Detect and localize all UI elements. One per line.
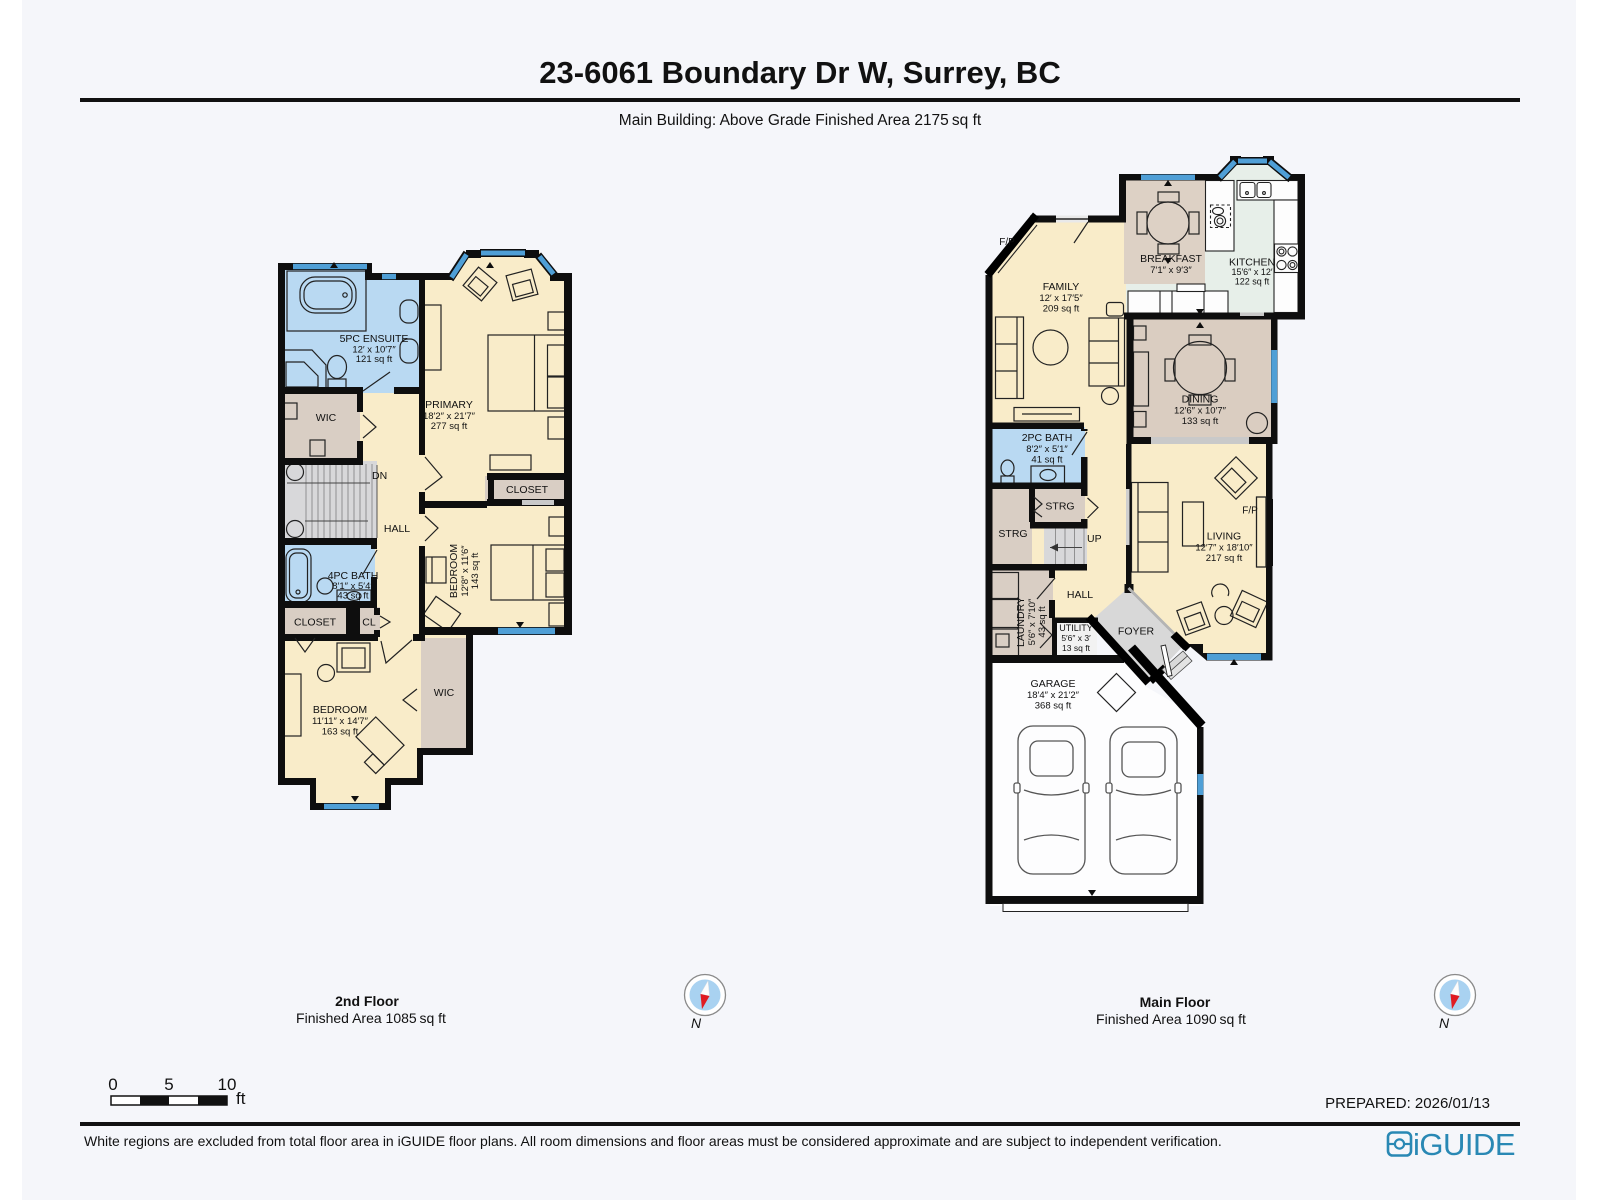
svg-text:368 sq ft: 368 sq ft bbox=[1035, 701, 1072, 712]
svg-text:217 sq ft: 217 sq ft bbox=[1206, 553, 1243, 564]
svg-text:CLOSET: CLOSET bbox=[506, 484, 549, 496]
svg-text:12′6″ x 10′7″: 12′6″ x 10′7″ bbox=[1174, 406, 1227, 417]
svg-text:STRG: STRG bbox=[998, 528, 1027, 540]
svg-text:iGUIDE: iGUIDE bbox=[1413, 1127, 1515, 1162]
svg-text:7′1″ x 9′3″: 7′1″ x 9′3″ bbox=[1150, 265, 1192, 276]
svg-text:HALL: HALL bbox=[1067, 589, 1093, 601]
svg-text:PRIMARY: PRIMARY bbox=[425, 399, 473, 411]
svg-text:UP: UP bbox=[1087, 533, 1102, 545]
svg-text:N: N bbox=[1439, 1015, 1450, 1031]
svg-text:N: N bbox=[691, 1015, 702, 1031]
svg-text:FOYER: FOYER bbox=[1118, 626, 1155, 638]
svg-text:43 sq ft: 43 sq ft bbox=[1037, 606, 1048, 638]
svg-text:WIC: WIC bbox=[434, 687, 455, 699]
svg-text:WIC: WIC bbox=[316, 412, 337, 424]
svg-text:209 sq ft: 209 sq ft bbox=[1043, 304, 1080, 315]
svg-text:143 sq ft: 143 sq ft bbox=[470, 552, 481, 589]
svg-text:277 sq ft: 277 sq ft bbox=[431, 421, 468, 432]
svg-text:122 sq ft: 122 sq ft bbox=[1235, 277, 1270, 287]
svg-text:8′2″ x 5′1″: 8′2″ x 5′1″ bbox=[1026, 444, 1068, 455]
svg-text:UTILITY: UTILITY bbox=[1059, 623, 1093, 633]
svg-text:12′7″ x 18′10″: 12′7″ x 18′10″ bbox=[1195, 543, 1253, 554]
svg-text:43 sq ft: 43 sq ft bbox=[337, 591, 369, 602]
svg-text:12′ x 17′5″: 12′ x 17′5″ bbox=[1039, 293, 1083, 304]
svg-text:5: 5 bbox=[164, 1075, 173, 1094]
svg-text:CLOSET: CLOSET bbox=[294, 617, 337, 629]
svg-text:F/P: F/P bbox=[1242, 506, 1258, 517]
svg-text:121 sq ft: 121 sq ft bbox=[356, 354, 393, 365]
svg-text:13 sq ft: 13 sq ft bbox=[1062, 643, 1091, 653]
svg-text:LAUNDRY: LAUNDRY bbox=[1015, 597, 1027, 647]
svg-text:FAMILY: FAMILY bbox=[1043, 281, 1080, 293]
svg-text:18′4″ x 21′2″: 18′4″ x 21′2″ bbox=[1027, 690, 1080, 701]
svg-text:HALL: HALL bbox=[384, 523, 410, 535]
svg-text:STRG: STRG bbox=[1045, 501, 1074, 513]
svg-text:5′6″ x 3′: 5′6″ x 3′ bbox=[1061, 633, 1091, 643]
svg-text:15′6″ x 12′: 15′6″ x 12′ bbox=[1231, 267, 1272, 277]
svg-text:2PC BATH: 2PC BATH bbox=[1022, 432, 1073, 444]
svg-text:BEDROOM: BEDROOM bbox=[313, 704, 367, 716]
svg-text:DINING: DINING bbox=[1182, 394, 1219, 406]
svg-text:F/P: F/P bbox=[999, 237, 1015, 248]
svg-text:41 sq ft: 41 sq ft bbox=[1031, 455, 1063, 466]
svg-text:11′11″ x 14′7″: 11′11″ x 14′7″ bbox=[312, 716, 369, 727]
svg-text:ft: ft bbox=[236, 1089, 246, 1108]
svg-text:163 sq ft: 163 sq ft bbox=[322, 727, 359, 738]
svg-text:0: 0 bbox=[108, 1075, 117, 1094]
svg-text:LIVING: LIVING bbox=[1207, 531, 1241, 543]
svg-text:CL: CL bbox=[362, 617, 376, 629]
svg-text:GARAGE: GARAGE bbox=[1031, 678, 1076, 690]
svg-text:DN: DN bbox=[372, 470, 387, 482]
svg-text:10: 10 bbox=[218, 1075, 237, 1094]
svg-text:133 sq ft: 133 sq ft bbox=[1182, 416, 1219, 427]
svg-text:5PC ENSUITE: 5PC ENSUITE bbox=[340, 333, 409, 345]
svg-text:BEDROOM: BEDROOM bbox=[448, 544, 460, 598]
